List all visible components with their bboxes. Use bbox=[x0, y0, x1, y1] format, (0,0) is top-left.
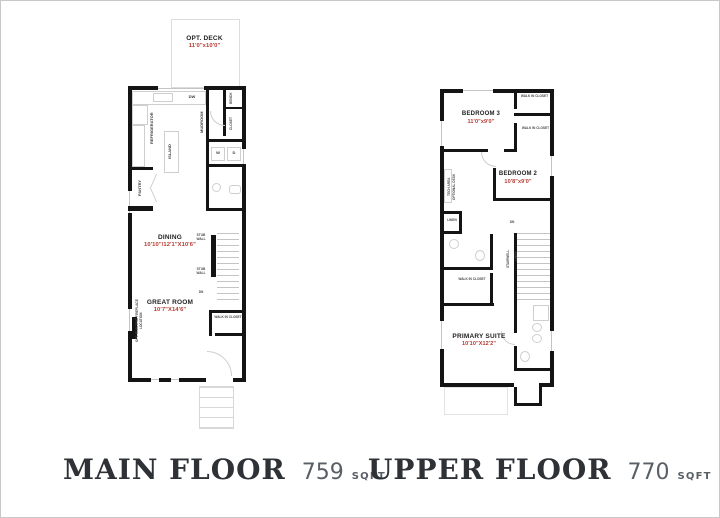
interior-wall bbox=[132, 167, 153, 170]
roof-outline bbox=[444, 387, 508, 415]
opt-deck-tag: OPT. DECK 11'0"x10'0" bbox=[171, 35, 238, 50]
interior-wall bbox=[215, 333, 246, 336]
bedroom3-tag: BEDROOM 3 11'0"x9'0" bbox=[451, 111, 511, 125]
wall bbox=[179, 378, 206, 382]
fridge-box bbox=[132, 105, 148, 125]
ensuite-sink bbox=[532, 334, 542, 343]
stairwell-label: STAIRWELL bbox=[507, 245, 511, 273]
opt-deck-outline bbox=[171, 19, 240, 88]
dw-label: DW bbox=[185, 95, 199, 100]
wall bbox=[242, 165, 246, 382]
window bbox=[171, 379, 179, 380]
bedroom3-dims: 11'0"x9'0" bbox=[451, 119, 511, 126]
mudroom-label: MUDROOM bbox=[200, 107, 205, 137]
walk-in-closet-label: WALK IN CLOSET bbox=[213, 316, 243, 320]
pantry-door-line bbox=[150, 173, 157, 188]
interior-wall bbox=[209, 139, 246, 142]
washer-label: W bbox=[213, 151, 223, 156]
main-floor-title: MAIN FLOOR bbox=[63, 453, 286, 486]
bedroom2-dims: 10'8"x9'0" bbox=[488, 179, 548, 186]
dn-label: DN bbox=[507, 221, 517, 225]
interior-wall bbox=[226, 107, 246, 109]
stub-wall bbox=[211, 235, 216, 277]
upper-floor-sqft-unit: SQFT bbox=[678, 471, 712, 482]
primary-suite-tag: PRIMARY SUITE 10'10"X12'2" bbox=[448, 333, 510, 348]
interior-wall bbox=[209, 164, 246, 167]
interior-wall bbox=[514, 93, 517, 109]
interior-wall bbox=[209, 310, 212, 336]
walk-in-closet-label: WALK IN CLOSET bbox=[520, 127, 551, 131]
front-steps bbox=[199, 386, 234, 429]
interior-wall bbox=[444, 303, 494, 306]
wall bbox=[440, 349, 444, 387]
great-room-label: GREAT ROOM bbox=[132, 299, 208, 307]
window bbox=[463, 90, 493, 91]
window bbox=[441, 121, 442, 146]
door-arc bbox=[481, 152, 496, 167]
interior-wall bbox=[514, 123, 517, 149]
great-room-dims: 10'7"X14'6" bbox=[132, 307, 208, 314]
wall bbox=[550, 89, 554, 156]
interior-wall bbox=[206, 90, 209, 211]
wall bbox=[233, 378, 246, 382]
dining-dims: 10'10"/12'1"X10'6" bbox=[134, 242, 206, 249]
window bbox=[551, 331, 552, 351]
bedroom3-label: BEDROOM 3 bbox=[451, 111, 511, 119]
wall bbox=[128, 213, 132, 309]
upper-floor-title: UPPER FLOOR bbox=[368, 453, 612, 486]
vanity-sink bbox=[229, 185, 241, 194]
dining-tag: DINING 10'10"/12'1"X10'6" bbox=[134, 234, 206, 249]
closet-label: CLOSET bbox=[230, 114, 234, 133]
floor-plan-sheet: OPT. DECK 11'0"x10'0" bbox=[0, 0, 720, 518]
interior-wall bbox=[514, 113, 554, 116]
great-room-tag: GREAT ROOM 10'7"X14'6" bbox=[132, 299, 208, 314]
stairs-main bbox=[217, 233, 239, 303]
interior-wall bbox=[444, 267, 493, 270]
interior-wall bbox=[209, 310, 246, 313]
shower bbox=[533, 305, 549, 321]
linen-label: LINEN bbox=[515, 247, 519, 265]
optional-desk-label: OPTIONAL DESK bbox=[453, 167, 457, 207]
wall bbox=[493, 89, 554, 93]
bath-sink bbox=[449, 239, 459, 249]
door-arc bbox=[210, 111, 225, 126]
walk-in-closet-label: WALK IN CLOSET bbox=[457, 278, 487, 282]
stairs-upper bbox=[517, 233, 550, 301]
linen-label: LINEN bbox=[445, 219, 459, 223]
upper-floor-caption: UPPER FLOOR 770 SQFT bbox=[368, 453, 712, 486]
wall bbox=[550, 351, 554, 387]
kitchen-counter bbox=[132, 125, 145, 167]
main-floor-caption: MAIN FLOOR 759 SQFT bbox=[63, 453, 386, 486]
interior-wall bbox=[514, 303, 517, 333]
interior-wall bbox=[444, 231, 460, 234]
upper-floor-sqft-value: 770 bbox=[628, 460, 670, 485]
interior-wall bbox=[490, 273, 493, 303]
wall bbox=[440, 89, 444, 121]
primary-suite-label: PRIMARY SUITE bbox=[448, 333, 510, 341]
bedroom2-label: BEDROOM 2 bbox=[488, 171, 548, 179]
wall bbox=[128, 378, 151, 382]
interior-wall bbox=[206, 208, 246, 211]
primary-suite-dims: 10'10"X12'2" bbox=[448, 341, 510, 348]
window bbox=[151, 379, 159, 380]
interior-wall bbox=[517, 368, 550, 371]
window bbox=[441, 321, 442, 349]
dn-label: DN bbox=[196, 291, 206, 295]
interior-wall bbox=[444, 211, 460, 214]
interior-wall bbox=[504, 149, 517, 152]
wall bbox=[539, 387, 542, 405]
pantry-label: PANTRY bbox=[138, 175, 143, 201]
entry-door-arc bbox=[207, 351, 232, 376]
dining-label: DINING bbox=[134, 234, 206, 242]
interior-wall bbox=[493, 198, 554, 201]
wall bbox=[128, 86, 158, 90]
wall bbox=[159, 378, 171, 382]
window bbox=[243, 149, 244, 165]
kitchen-sink bbox=[153, 93, 173, 102]
stub-wall-label: STUB WALL bbox=[194, 268, 208, 276]
interior-wall bbox=[128, 206, 153, 211]
refrigerator-label: REFRIGERATOR bbox=[150, 109, 155, 147]
toilet bbox=[475, 250, 485, 261]
pantry-door-line bbox=[150, 187, 157, 202]
window bbox=[551, 156, 552, 176]
ensuite-sink bbox=[532, 323, 542, 332]
window bbox=[129, 309, 130, 331]
dryer-label: D bbox=[229, 151, 239, 156]
interior-wall bbox=[490, 234, 493, 267]
main-floor-sqft-value: 759 bbox=[302, 460, 344, 485]
toilet bbox=[520, 351, 530, 362]
wall bbox=[514, 403, 542, 406]
toilet bbox=[212, 183, 221, 192]
opt-deck-label: OPT. DECK bbox=[171, 35, 238, 43]
bench-label: BENCH bbox=[230, 91, 234, 106]
opt-deck-dims: 11'0"x10'0" bbox=[171, 43, 238, 50]
island-label: ISLAND bbox=[168, 139, 173, 165]
walk-in-closet-label: WALK IN CLOSET bbox=[518, 95, 551, 99]
bedroom2-tag: BEDROOM 2 10'8"x9'0" bbox=[488, 171, 548, 185]
patio-door-glass bbox=[158, 88, 204, 89]
